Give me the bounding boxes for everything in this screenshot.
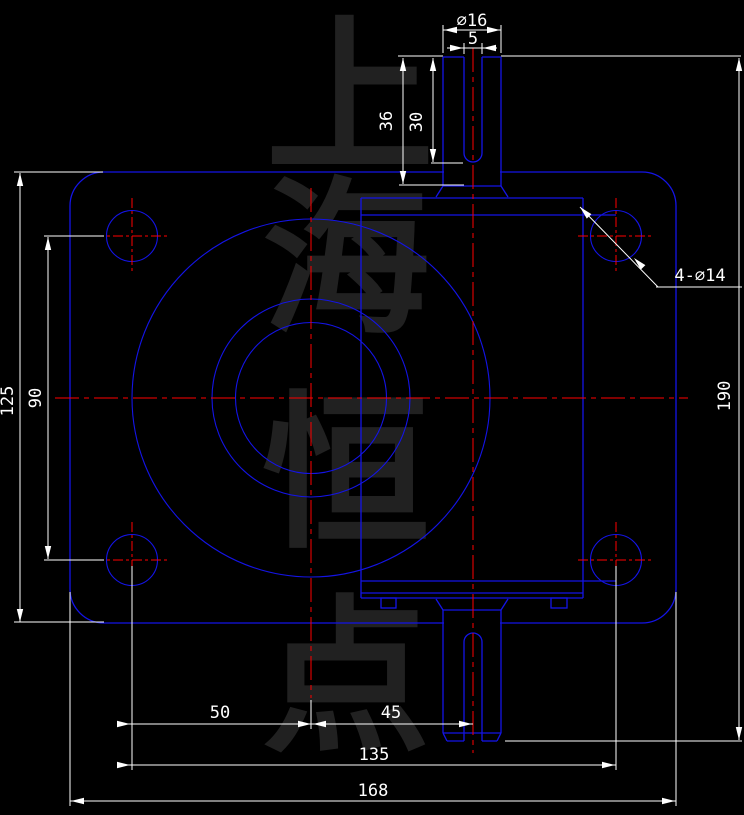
dim-keyway-length: 30 bbox=[407, 58, 436, 162]
centerlines bbox=[55, 48, 688, 753]
dim-text-keyway-width: 5 bbox=[468, 29, 478, 49]
dim-text-center-to-shaft: 45 bbox=[381, 703, 401, 723]
dim-shaft-length: 36 bbox=[377, 58, 406, 184]
hole-centerline-top-left bbox=[94, 198, 170, 274]
dim-text-hole-spacing-vertical: 90 bbox=[26, 388, 46, 408]
dim-hole-spacing-vertical: 90 bbox=[26, 237, 51, 559]
hole-callout: 4-∅14 bbox=[580, 207, 742, 287]
dim-overall-height: 190 bbox=[715, 58, 742, 740]
hole-centerline-top-right bbox=[578, 198, 654, 274]
dim-overall-width: 168 bbox=[70, 781, 676, 804]
dim-text-overall-height: 190 bbox=[715, 381, 735, 412]
cad-drawing-canvas: 上 海 恒 点 bbox=[0, 0, 744, 815]
foot-right bbox=[551, 598, 567, 608]
dim-text-shaft-length: 36 bbox=[377, 111, 397, 131]
dim-text-shaft-diameter: ∅16 bbox=[457, 11, 488, 31]
dim-text-overall-width: 168 bbox=[358, 781, 389, 801]
dim-text-body-height: 125 bbox=[0, 386, 18, 417]
dim-text-keyway-length: 30 bbox=[407, 112, 427, 132]
dim-text-hole-spacing-horizontal: 135 bbox=[359, 745, 390, 765]
dim-body-height: 125 bbox=[0, 173, 23, 622]
inner-housing bbox=[361, 198, 616, 608]
foot-left bbox=[381, 598, 396, 608]
dim-text-mounting-holes: 4-∅14 bbox=[674, 266, 725, 286]
dim-text-hole-to-center: 50 bbox=[210, 703, 230, 723]
extension-lines bbox=[14, 25, 742, 806]
dim-hole-spacing-horizontal: 135 bbox=[117, 745, 616, 768]
gearbox-front-view-drawing: ∅16 5 36 30 125 bbox=[0, 0, 744, 815]
dim-hole-to-center: 50 bbox=[117, 703, 473, 727]
